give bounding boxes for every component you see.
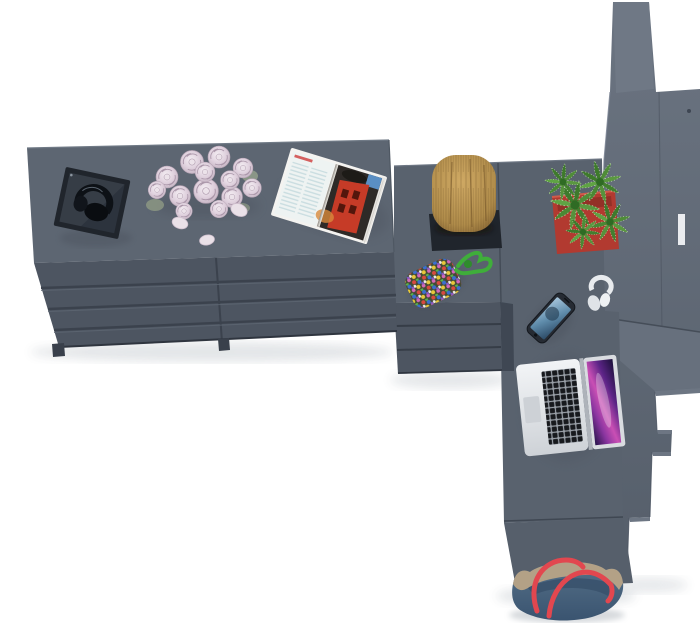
laptop xyxy=(516,354,626,462)
desk-drawer-unit xyxy=(394,302,514,374)
knob xyxy=(687,109,691,113)
wooden-stump xyxy=(429,155,502,251)
laptop-trackpad xyxy=(523,396,542,424)
scene-canvas xyxy=(0,0,700,623)
dresser-foot-center xyxy=(218,338,230,351)
shelf-notch xyxy=(678,214,685,245)
furniture-render: Top-down 3D render of a graphite-gray fu… xyxy=(0,0,700,623)
tray-headphones xyxy=(53,167,132,247)
dresser-foot-left xyxy=(52,343,65,357)
shelving-top-slab xyxy=(613,2,654,93)
